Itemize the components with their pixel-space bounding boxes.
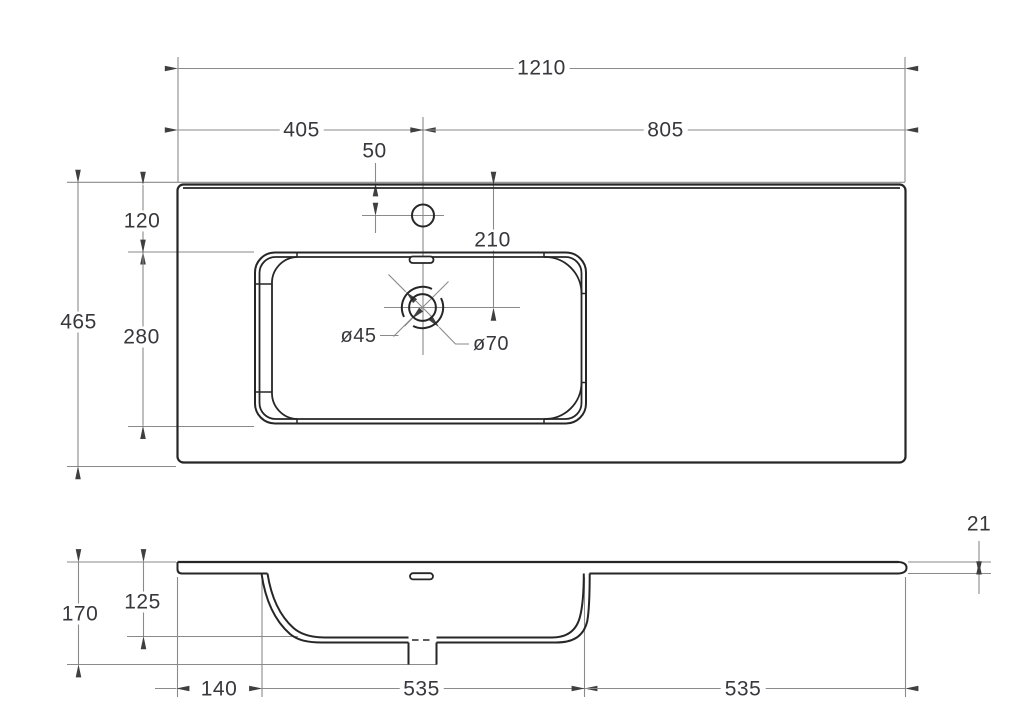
dim-overall-depth-label: 465 [56, 312, 101, 333]
basin-rim-inner [260, 257, 582, 419]
extension-lines [67, 57, 991, 697]
dim-faucet-left-label: 405 [279, 120, 324, 141]
dim-right-ledge-label: 535 [721, 678, 766, 699]
drain-stub [409, 643, 437, 665]
drain-leader-arrow [389, 275, 406, 292]
overflow-slot [410, 257, 434, 264]
dim-basin-depth-label: 280 [119, 327, 164, 348]
section-basin-wall-inner-left [268, 574, 409, 638]
dim-overall-width-label: 1210 [513, 58, 570, 79]
basin-floor-left-outline [272, 257, 297, 419]
drawing-svg [0, 0, 1024, 723]
dim-drain-offset-label: 210 [470, 230, 515, 251]
basin-floor-right-corners [544, 257, 582, 419]
dim-basin-left-offset-label: 140 [197, 678, 242, 699]
section-right-ledge [590, 562, 907, 574]
section-basin-wall-outer-right [437, 574, 590, 643]
basin-rim-outer [255, 253, 586, 424]
drain-flange-leader [439, 327, 472, 344]
dim-basin-offset-label: 120 [120, 210, 165, 231]
section-left-ledge [178, 562, 268, 574]
top-view [178, 185, 906, 463]
dim-overall-height-label: 170 [58, 603, 103, 624]
technical-drawing-canvas: 1210 405 805 50 120 210 465 280 ø45 ø70 … [0, 0, 1024, 723]
dim-drain-hole-diameter-label: ø45 [337, 326, 381, 346]
dim-basin-width-label: 535 [399, 678, 444, 699]
dimension-lines [78, 69, 979, 689]
drain-hole-leader [405, 319, 412, 326]
dim-basin-inner-depth-label: 125 [120, 592, 165, 613]
dim-faucet-edge-label: 50 [358, 141, 390, 162]
basin-corner-ticks [255, 253, 586, 424]
overflow-slot-section [410, 573, 433, 579]
countertop-outline [178, 185, 906, 463]
dim-drain-flange-diameter-label: ø70 [469, 334, 513, 354]
section-basin-wall-outer-left [262, 574, 409, 643]
section-view [178, 562, 907, 665]
dim-thickness-label: 21 [963, 514, 995, 535]
dim-faucet-right-label: 805 [643, 120, 688, 141]
section-basin-wall-inner-right [437, 574, 584, 638]
